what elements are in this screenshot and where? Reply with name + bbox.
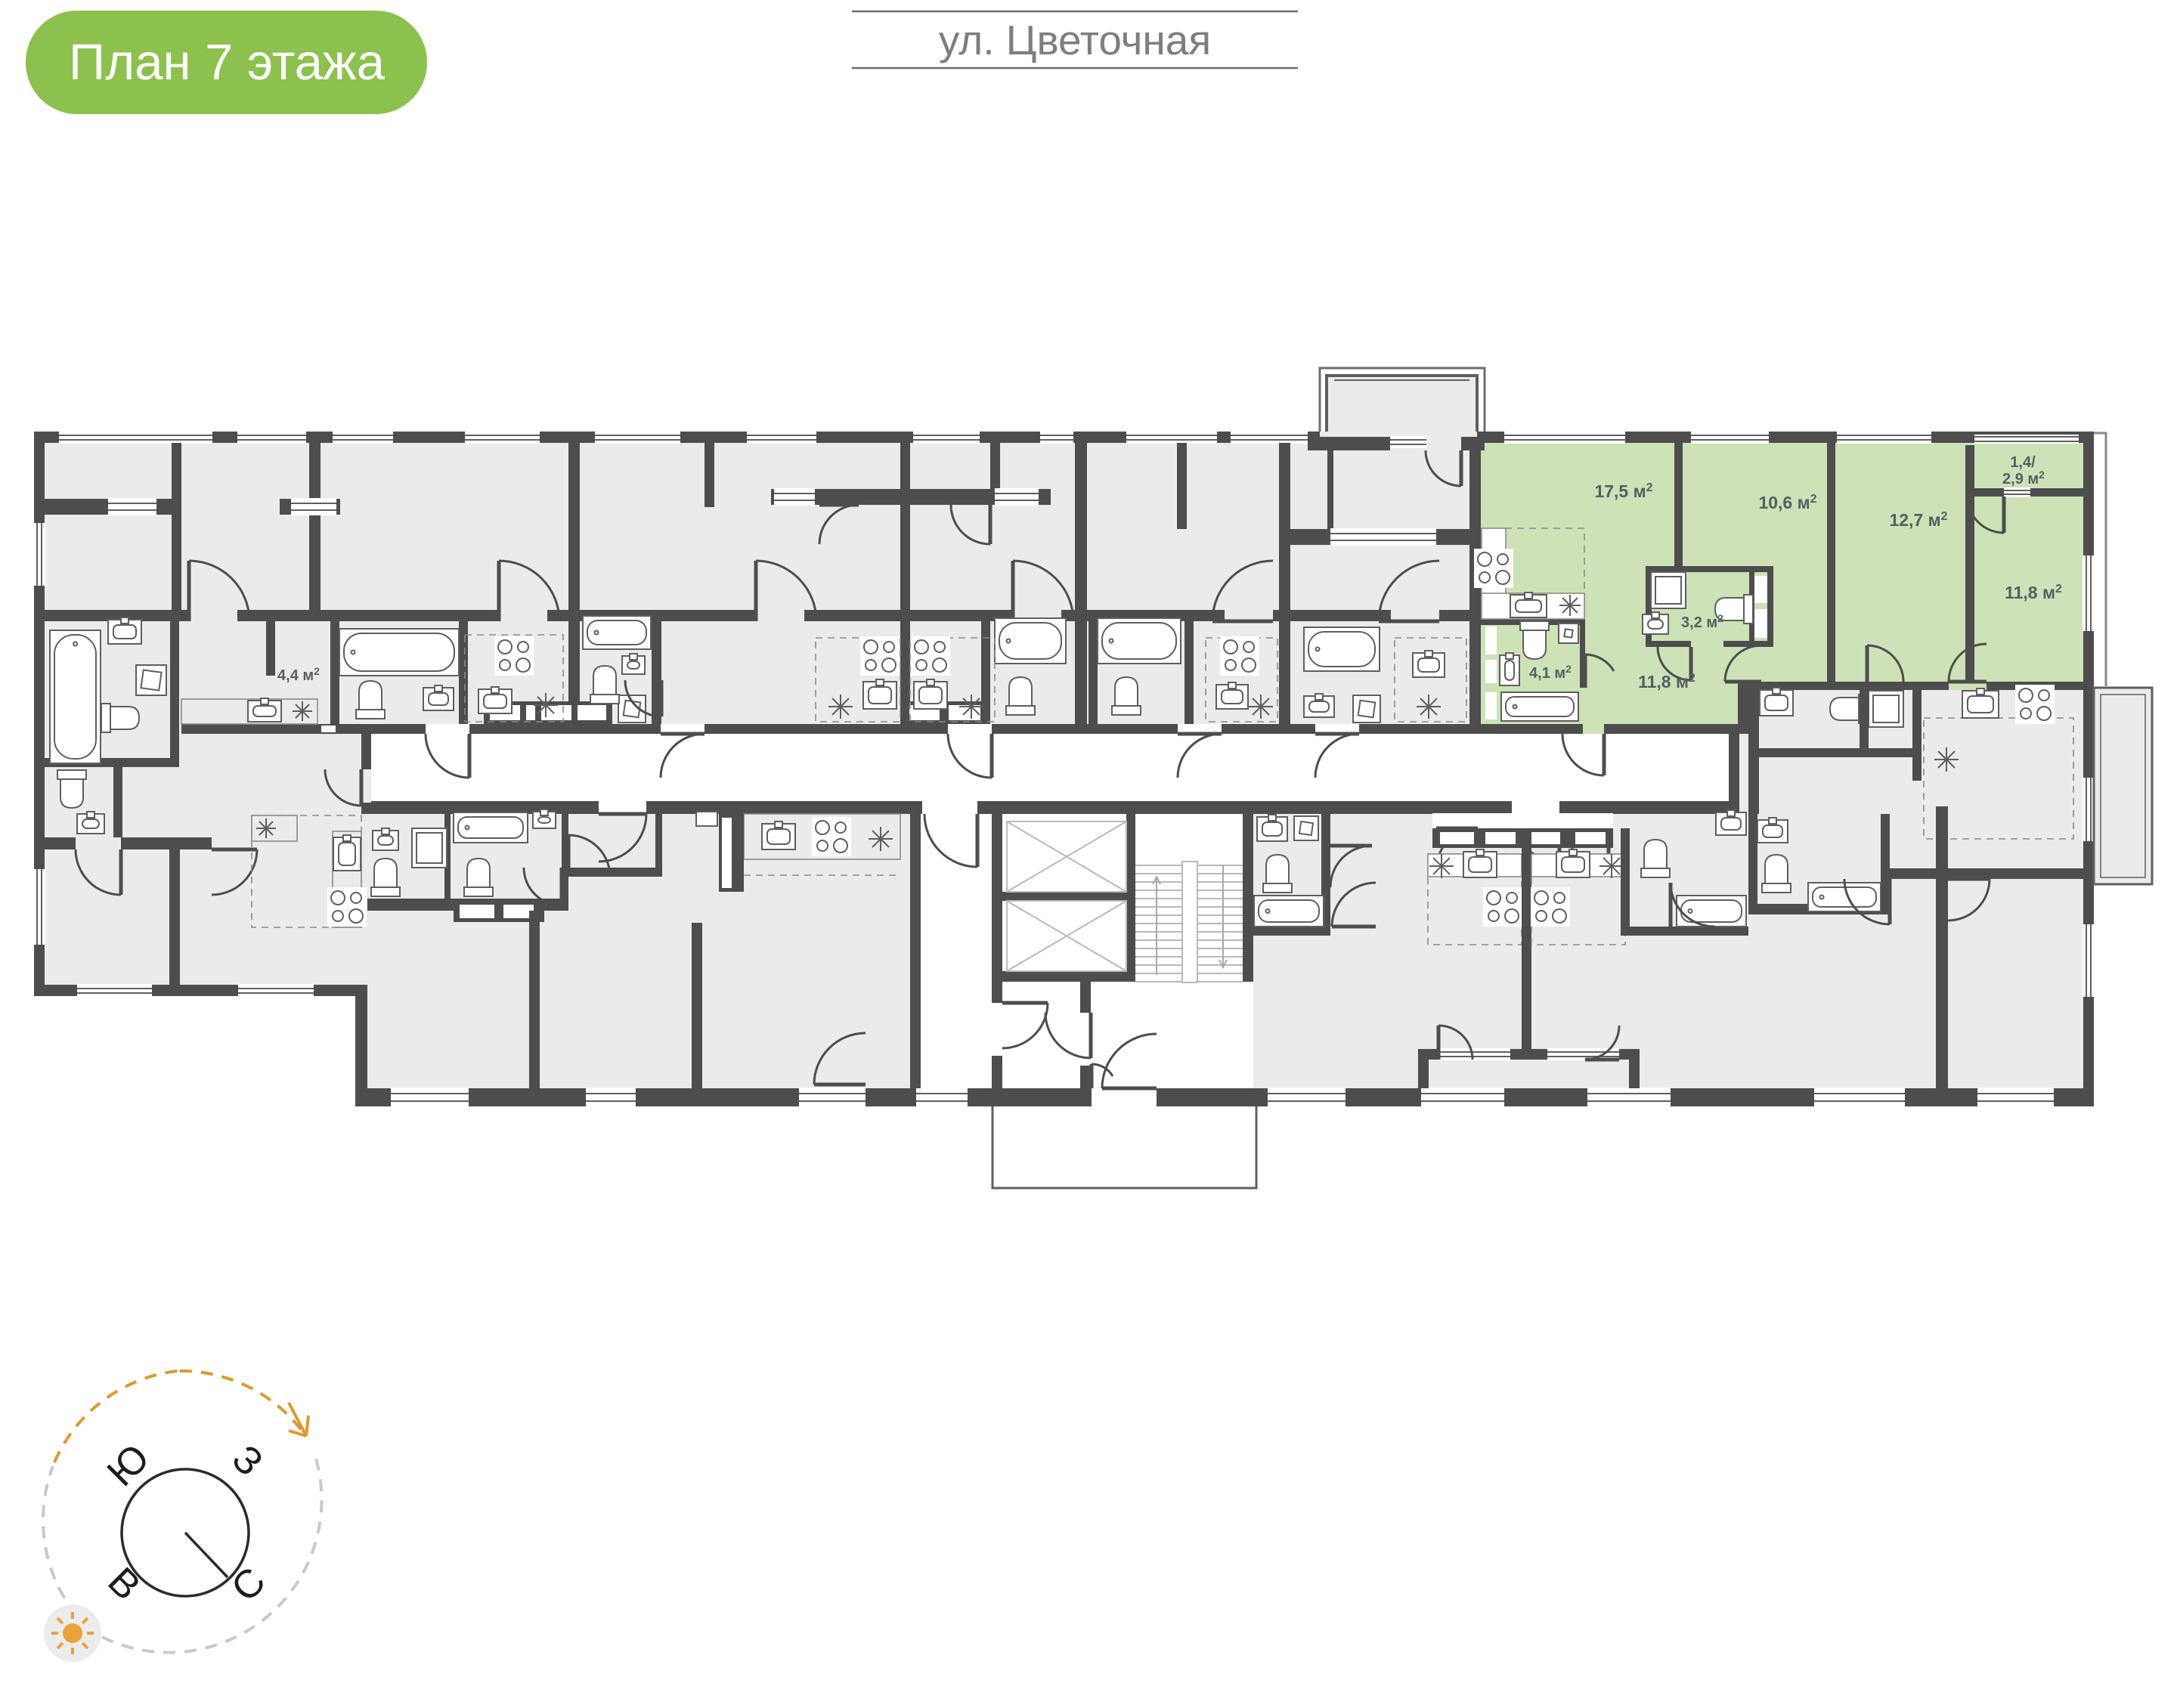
svg-text:4,1 м2: 4,1 м2 <box>1529 663 1572 682</box>
svg-text:17,5 м2: 17,5 м2 <box>1594 481 1652 501</box>
svg-text:10,6 м2: 10,6 м2 <box>1758 493 1816 512</box>
svg-text:3,2 м2: 3,2 м2 <box>1681 612 1723 631</box>
svg-text:12,7 м2: 12,7 м2 <box>1889 510 1947 530</box>
svg-text:2,9 м2: 2,9 м2 <box>2002 469 2045 487</box>
svg-text:ул. Цветочная: ул. Цветочная <box>939 17 1211 63</box>
svg-text:11,8 м2: 11,8 м2 <box>1638 672 1695 692</box>
svg-text:11,8 м2: 11,8 м2 <box>2005 583 2062 602</box>
svg-text:4,4 м2: 4,4 м2 <box>277 665 320 684</box>
svg-text:1,4/: 1,4/ <box>2010 454 2036 471</box>
svg-text:План 7 этажа: План 7 этажа <box>69 34 386 91</box>
